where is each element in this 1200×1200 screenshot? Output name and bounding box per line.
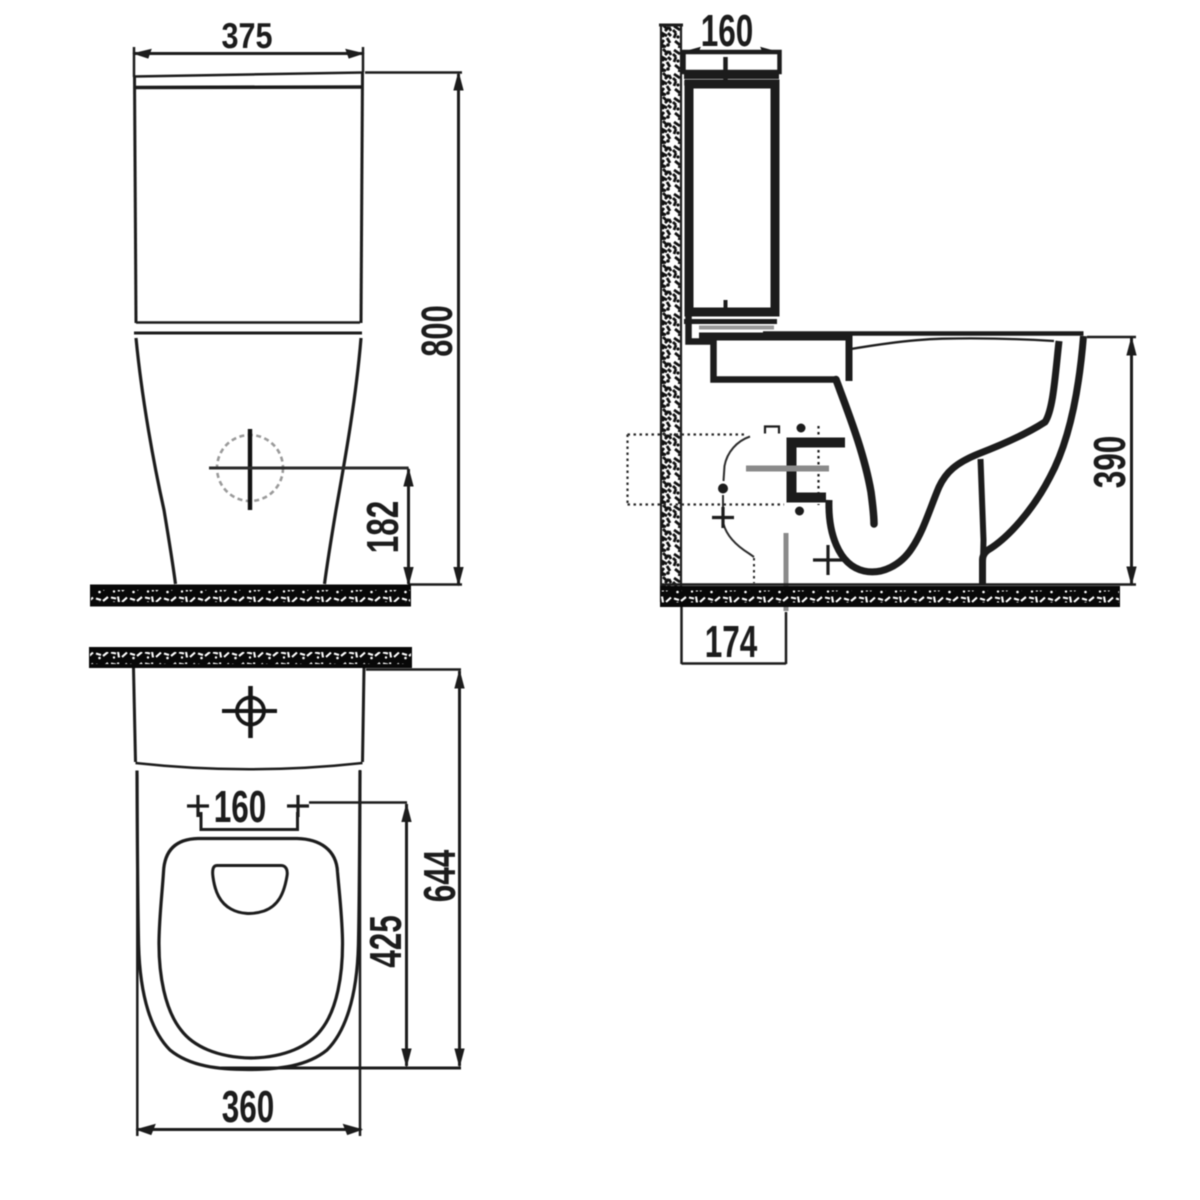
svg-text:390: 390: [1084, 436, 1135, 489]
svg-text:425: 425: [360, 915, 411, 968]
svg-text:644: 644: [414, 850, 465, 903]
svg-text:360: 360: [222, 1081, 275, 1132]
svg-text:375: 375: [221, 15, 272, 56]
svg-text:174: 174: [705, 616, 758, 667]
svg-text:182: 182: [357, 501, 408, 554]
svg-text:160: 160: [701, 5, 754, 56]
svg-text:800: 800: [413, 305, 462, 356]
svg-text:160: 160: [214, 781, 267, 832]
